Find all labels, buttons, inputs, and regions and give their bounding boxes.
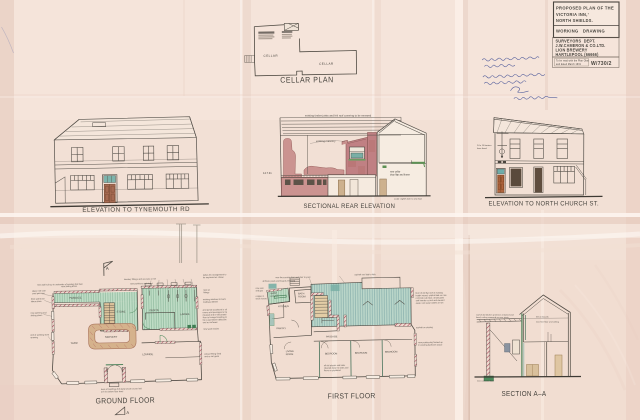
svg-text:new sliding doors: new sliding doors [61,285,77,288]
svg-text:GROUND FLOOR: GROUND FLOOR [96,395,155,406]
svg-text:yard passage: yard passage [32,292,45,295]
svg-text:LOUNGE: LOUNGE [142,352,153,356]
svg-text:be improved as shown: be improved as shown [203,276,225,279]
svg-text:ROOM: ROOM [298,295,305,298]
svg-text:CELLAR: CELLAR [319,62,334,66]
svg-text:all floors joists and boards r: all floors joists and boards renewed [262,279,295,282]
svg-text:SERVERY: SERVERY [105,335,118,339]
svg-text:HARTLEPOOL (66666): HARTLEPOOL (66666) [556,52,599,57]
svg-text:WORKING DRAWING: WORKING DRAWING [556,29,605,34]
svg-text:SECTION A–A: SECTION A–A [502,391,547,399]
svg-text:and re-set grate: and re-set grate [204,355,220,358]
svg-text:lavatory fittings and wc pans: lavatory fittings and wc pans re-set [124,277,156,281]
svg-text:scale: eighth inch to one foot: scale: eighth inch to one foot [394,198,422,201]
svg-text:PROPOSED PLAN OF THE: PROPOSED PLAN OF THE [556,6,614,11]
svg-text:felt on boards: felt on boards [536,316,549,319]
svg-text:PASSAGE: PASSAGE [326,335,338,338]
svg-text:GENTS: GENTS [150,308,159,312]
svg-text:taken down: taken down [31,300,43,303]
svg-text:YARD: YARD [71,341,78,345]
svg-text:asphalt on skirting: asphalt on skirting [416,326,434,329]
svg-text:in existing bedroom space: in existing bedroom space [418,343,443,346]
svg-text:new partitions and doors: new partitions and doors [130,282,153,285]
svg-text:floors re-plastered: floors re-plastered [324,369,342,372]
svg-text:VICTORIA INN,’: VICTORIA INN,’ [556,12,589,17]
svg-text:STORE: STORE [117,310,126,314]
svg-text:To be read with the Plan Obst: To be read with the Plan Obst [556,60,589,63]
svg-text:ROOM: ROOM [286,353,293,356]
svg-text:new fire escape door and stair: new fire escape door and stair to yard [275,276,311,279]
svg-text:A: A [106,266,109,271]
svg-text:CELLAR PLAN: CELLAR PLAN [280,75,334,85]
svg-text:new concrete floor: new concrete floor [477,380,494,383]
svg-text:lined, ceiling renewed on new: lined, ceiling renewed on new joists [476,316,509,319]
svg-text:W/730/2: W/730/2 [591,61,612,67]
svg-text:away. rain water outlets re-se: away. rain water outlets re-set [416,301,444,304]
svg-text:ELEVATION TO TYNEMOUTH RD: ELEVATION TO TYNEMOUTH RD [82,206,190,214]
svg-text:roadway altered: roadway altered [203,300,219,303]
svg-text:NORTH SHIELDS.: NORTH SHIELDS. [556,18,593,23]
svg-text:ELEVATION TO NORTH CHURCH: ELEVATION TO NORTH CHURCH ST. [489,200,599,207]
svg-text:opening: opening [31,337,39,339]
svg-text:SECTIONAL REAR ELEVATION: SECTIONAL REAR ELEVATION [304,204,396,210]
svg-text:new first floor and ceiling: new first floor and ceiling [536,321,560,324]
svg-text:existing timber joists and: existing timber joists and felt roof cov… [305,115,372,118]
svg-text:here fixed: here fixed [477,147,487,150]
svg-text:new wash basins: new wash basins [203,328,219,330]
svg-text:sliding doors: sliding doors [31,314,43,317]
svg-text:fittings: fittings [203,291,209,294]
svg-text:and dated March 1931: and dated March 1931 [556,63,582,66]
svg-text:BEDROOM: BEDROOM [355,352,367,355]
svg-text:asphalt roof laid to falls: asphalt roof laid to falls [354,273,375,276]
svg-text:and re-surfaced: and re-surfaced [203,321,218,324]
svg-text:PANTRY: PANTRY [276,327,286,330]
svg-text:A: A [126,410,129,415]
svg-text:wash house: wash house [256,298,268,300]
svg-text:14.7.31: 14.7.31 [263,171,272,175]
svg-text:FIRST FLOOR: FIRST FLOOR [328,392,376,401]
svg-text:at 6 ins below floor level: at 6 ins below floor level [101,390,124,393]
svg-text:BEDROOM: BEDROOM [325,352,337,355]
svg-text:CELLAR: CELLAR [264,54,279,58]
svg-text:BEDROOM: BEDROOM [385,351,397,354]
svg-text:14 x 10 lantern: 14 x 10 lantern [477,144,492,147]
svg-text:new cellar: new cellar [390,171,401,174]
svg-text:existing masonry: existing masonry [316,140,336,143]
svg-text:drop flap and frame: drop flap and frame [390,174,411,177]
svg-text:PASSAGE: PASSAGE [69,296,82,300]
svg-text:and gas: and gas [256,290,263,292]
svg-text:LADIES: LADIES [180,312,190,316]
